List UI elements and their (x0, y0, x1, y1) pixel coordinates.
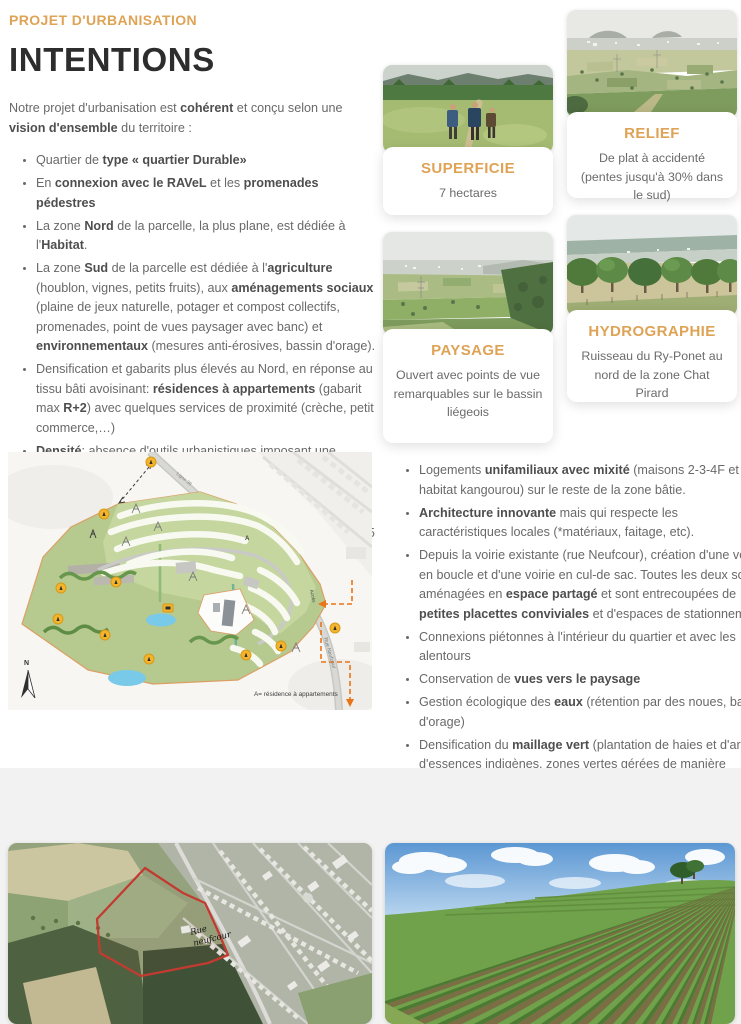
info-card-paysage: PAYSAGE Ouvert avec points de vue remarq… (383, 329, 553, 443)
bullet-item: Connexions piétonnes à l'intérieur du qu… (419, 628, 741, 667)
bullet-item: En connexion avec le RAVeL et les promen… (36, 174, 379, 213)
relief-photo (567, 10, 737, 118)
bullet-item: Gestion écologique des eaux (rétention p… (419, 693, 741, 732)
hikers-meadow-illustration (383, 65, 553, 153)
superficie-photo (383, 65, 553, 153)
page: PROJET D'URBANISATION INTENTIONS Notre p… (0, 0, 741, 1024)
card-text: 7 hectares (383, 184, 553, 203)
tree-row-meadow-illustration (567, 215, 737, 316)
card-text: Ruisseau du Ry-Ponet au nord de la zone … (567, 347, 737, 403)
building-marker-label: A (245, 536, 250, 542)
open-landscape-illustration (383, 232, 553, 335)
bullet-item: Logements unifamiliaux avec mixité (mais… (419, 461, 741, 500)
panorama-valley-illustration (567, 10, 737, 118)
pond (146, 614, 176, 627)
bullet-item: Densification et gabarits plus élevés au… (36, 360, 379, 438)
paysage-photo (383, 232, 553, 335)
page-title: INTENTIONS (9, 41, 379, 79)
vineyard-photo (385, 843, 735, 1024)
svg-text:N: N (24, 660, 29, 667)
bullet-item: Architecture innovante mais qui respecte… (419, 504, 741, 543)
info-card-relief: RELIEF De plat à accidenté (pentes jusqu… (567, 112, 737, 198)
map-legend: A= résidence à appartements (254, 691, 338, 698)
bullet-item: La zone Sud de la parcelle est dédiée à … (36, 259, 379, 357)
card-title: PAYSAGE (383, 342, 553, 359)
card-title: RELIEF (567, 125, 737, 142)
intro-paragraph: Notre projet d'urbanisation est cohérent… (9, 99, 379, 138)
info-card-hydrographie: HYDROGRAPHIE Ruisseau du Ry-Ponet au nor… (567, 310, 737, 402)
site-plan-map: Ligne 38 Rue Neufcour Accès A A= résiden… (8, 452, 372, 710)
bullet-item: Quartier de type « quartier Durable» (36, 151, 379, 171)
bullet-item: La zone Nord de la parcelle, la plus pla… (36, 217, 379, 256)
bullet-item: Conservation de vues vers le paysage (419, 670, 741, 690)
card-text: Ouvert avec points de vue remarquables s… (383, 366, 553, 422)
hydrographie-photo (567, 215, 737, 316)
pond (108, 670, 146, 686)
section-kicker: PROJET D'URBANISATION (9, 12, 379, 28)
card-title: SUPERFICIE (383, 160, 553, 177)
bullet-item: Depuis la voirie existante (rue Neufcour… (419, 546, 741, 624)
card-title: HYDROGRAPHIE (567, 323, 737, 340)
aerial-parcel-photo: Rue neufcour (8, 843, 372, 1024)
card-text: De plat à accidenté (pentes jusqu'à 30% … (567, 149, 737, 205)
project-features-list: Logements unifamiliaux avec mixité (mais… (392, 461, 741, 798)
info-card-superficie: SUPERFICIE 7 hectares (383, 147, 553, 215)
